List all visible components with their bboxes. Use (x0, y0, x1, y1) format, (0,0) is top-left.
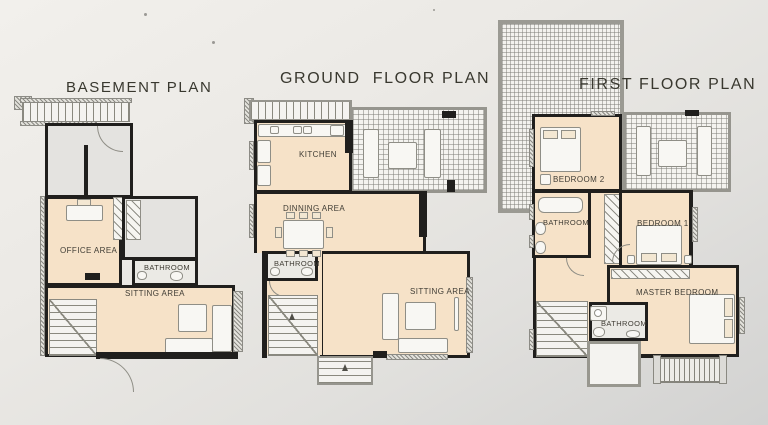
chair-icon (275, 227, 282, 238)
pillow-icon (641, 253, 657, 262)
sink-icon (270, 126, 279, 134)
toilet-icon (593, 327, 605, 337)
wall-segment (345, 120, 353, 153)
photo-speck (144, 13, 147, 16)
coffee-table-icon (405, 302, 436, 330)
room-label: SITTING AREA (125, 289, 185, 298)
door-arc (100, 358, 134, 392)
wardrobe-icon (611, 269, 690, 279)
stair-arrow (289, 313, 295, 320)
exterior-stairs (22, 100, 130, 122)
sink-icon (270, 267, 280, 276)
wall-segment (84, 145, 88, 198)
exterior-stairs (249, 100, 352, 121)
stair-diagonal (49, 299, 97, 356)
stair-diagonal (268, 295, 318, 356)
pillow-icon (724, 298, 733, 317)
window-hatch (386, 354, 448, 360)
wall-segment (373, 351, 387, 358)
sofa-icon (363, 129, 379, 178)
room-label: BATHROOM (543, 218, 589, 227)
window-hatch (233, 291, 243, 352)
plan-title: GROUND FLOOR PLAN (280, 70, 490, 88)
room-label: BEDROOM 1 (637, 219, 689, 228)
pillow-icon (543, 130, 558, 139)
cabinet-icon (257, 165, 271, 186)
photo-speck (212, 41, 215, 44)
window-hatch (529, 235, 534, 248)
toilet-icon (301, 267, 313, 276)
sink-icon (137, 271, 147, 280)
room-label: BATHROOM (274, 259, 320, 268)
coffee-table-icon (388, 142, 417, 169)
exterior-wall-hatch (20, 98, 132, 103)
window-hatch (591, 111, 615, 116)
column (685, 110, 699, 116)
window-hatch (249, 204, 254, 238)
room-label: SITTING AREA (410, 287, 470, 296)
chair-icon (77, 199, 91, 206)
plan-title: BASEMENT PLAN (66, 79, 212, 96)
stair-diagonal (536, 301, 588, 357)
railing-post (719, 355, 727, 384)
chair-icon (326, 227, 333, 238)
sofa-icon (382, 293, 399, 340)
coffee-table-icon (658, 140, 687, 167)
chair-icon (312, 250, 321, 257)
stove-icon (330, 125, 344, 136)
wall-segment (85, 273, 100, 280)
nightstand-icon (684, 255, 692, 264)
nightstand-icon (540, 174, 551, 185)
sink-icon (626, 330, 640, 338)
sofa-icon (212, 305, 232, 352)
chair-icon (299, 212, 308, 219)
shower-drain-icon (594, 309, 602, 317)
room-label: BATHROOM (601, 319, 647, 328)
dining-table-icon (283, 220, 324, 249)
balcony-railing (659, 357, 722, 383)
stairwell-void (587, 341, 641, 387)
wall-segment (419, 191, 427, 237)
pillow-icon (724, 319, 733, 338)
bathtub-icon (538, 197, 583, 213)
chair-icon (299, 250, 308, 257)
room-label: BEDROOM 2 (553, 175, 605, 184)
room-label: BATHROOM (144, 263, 190, 272)
wardrobe-icon (126, 200, 141, 240)
sofa-icon (636, 126, 651, 176)
toilet-icon (535, 241, 546, 254)
wall-segment (96, 352, 238, 359)
floor-plans-photo: OFFICE AREA BATHROOM SITTING AREA BASEME… (0, 0, 768, 425)
pillow-icon (561, 130, 576, 139)
railing-post (653, 355, 661, 384)
room-label: DINNING AREA (283, 204, 345, 213)
window-hatch (529, 204, 534, 220)
photo-speck (433, 9, 435, 11)
coffee-table-icon (178, 304, 207, 332)
chair-icon (312, 212, 321, 219)
window-hatch (529, 129, 534, 167)
sofa-icon (424, 129, 441, 178)
sink-icon (293, 126, 302, 134)
room-label: KITCHEN (299, 150, 337, 159)
pillow-icon (661, 253, 677, 262)
toilet-icon (170, 271, 183, 281)
room-label: MASTER BEDROOM (636, 288, 719, 297)
sink-icon (303, 126, 312, 134)
chair-icon (286, 250, 295, 257)
column (442, 111, 456, 118)
plan-title: FIRST FLOOR PLAN (579, 76, 756, 94)
exterior-wall-hatch (40, 196, 45, 356)
stair-arrow (342, 364, 348, 371)
sofa-icon (697, 126, 712, 176)
window-hatch (249, 141, 254, 170)
radiator-icon (454, 297, 459, 331)
desk-icon (66, 205, 103, 221)
room-label: OFFICE AREA (60, 246, 117, 255)
fridge-icon (257, 140, 271, 163)
window-hatch (692, 207, 698, 242)
sofa-icon (398, 338, 448, 353)
dining-room (254, 191, 426, 253)
chair-icon (286, 212, 295, 219)
column (447, 180, 455, 192)
window-hatch (739, 297, 745, 334)
window-hatch (529, 329, 534, 350)
